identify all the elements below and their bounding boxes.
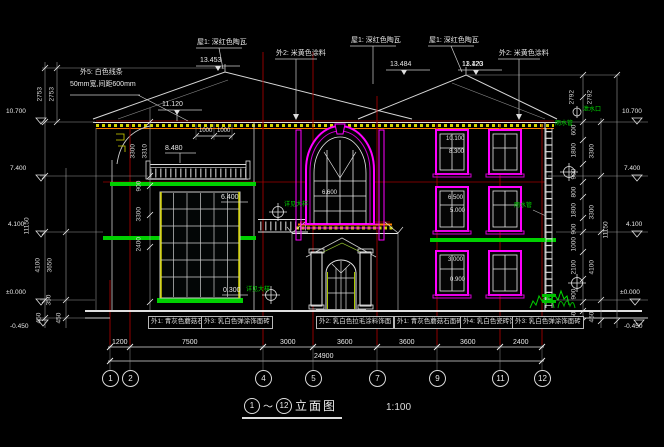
green-note: 雨水管 (514, 203, 532, 209)
dim-label: 1800 (572, 203, 579, 217)
title-bubble-start: 1 (244, 398, 260, 414)
dim-label: 1000 (217, 128, 230, 134)
dim-label: 3600 (337, 339, 353, 346)
dim-label: 3310 (143, 144, 150, 158)
drawing-scale: 1:100 (386, 402, 411, 413)
title-tilde: ～ (263, 398, 273, 413)
facade-label: 6.400 (221, 194, 239, 201)
facade-label: 8.480 (165, 145, 183, 152)
dim-label: 1200 (112, 339, 128, 346)
dim-label: 350 (47, 295, 54, 306)
elevation-label: ±0.000 (6, 290, 26, 297)
dim-label: 3600 (399, 339, 415, 346)
green-note: 泄水口 (583, 107, 601, 113)
rain-pipe (546, 128, 552, 308)
dim-label: 4100 (36, 258, 43, 272)
dim-label: 900 (137, 181, 144, 192)
drawing-title: 1 ～ 12 立面图 (242, 397, 342, 419)
dim-label: 2753 (50, 87, 57, 101)
dim-label: 3600 (460, 339, 476, 346)
green-note: 详见大样 (246, 287, 270, 293)
dim-label: 2400 (137, 237, 144, 251)
material-note: 外2: 乳白色拉毛涂料饰面 (316, 316, 394, 329)
window-label: 3.000 (448, 257, 463, 263)
grid-bubble: 4 (255, 370, 272, 387)
facade-label: 6.600 (322, 190, 337, 196)
elevation-label: 7.400 (624, 166, 640, 173)
dim-label: 900 (572, 289, 579, 300)
dim-label: 1800 (572, 143, 579, 157)
dim-label: 11.120 (162, 101, 183, 108)
annotation-ext5: 外5: 白色线条 (80, 69, 123, 76)
material-note: 外3: 乳白色弹涂饰面砖 (512, 316, 584, 329)
annotation-roof1: 屋1: 深红色陶瓦 (351, 37, 401, 44)
elevation-label: -0.450 (624, 324, 642, 331)
dim-label: 13.453 (200, 57, 221, 64)
dim-label: 1000 (572, 237, 579, 251)
material-note: 外3: 乳白色弹涂饰面砖 (201, 316, 273, 329)
dim-label: 11150 (604, 221, 611, 238)
dim-label: 7500 (182, 339, 198, 346)
elevation-label: 10.700 (622, 109, 642, 116)
elevation-label: 7.400 (10, 166, 26, 173)
grid-bubble: 7 (369, 370, 386, 387)
elevation-label: ±0.000 (620, 290, 640, 297)
dim-label: 3300 (590, 205, 597, 219)
dim-label: 2400 (513, 339, 529, 346)
dim-label: 900 (572, 224, 579, 235)
elevation-label: 4.100 (626, 222, 642, 229)
annotation-roof1: 屋1: 深红色陶瓦 (197, 39, 247, 46)
dim-label: 4100 (590, 260, 597, 274)
cad-linework (0, 0, 664, 447)
dim-label: 800 (572, 187, 579, 198)
dim-label: 900 (572, 169, 579, 180)
title-bubble-end: 12 (276, 398, 292, 414)
annotation-ext5b: 50mm宽,间距600mm (70, 81, 136, 88)
dim-label: 1000 (199, 128, 212, 134)
facade-label: 0.300 (223, 287, 241, 294)
dim-label: 13.423 (462, 61, 483, 68)
window-label: 0.900 (450, 277, 465, 283)
green-note: 详见大样 (284, 202, 308, 208)
grid-bubble: 2 (122, 370, 139, 387)
grid-bubble: 9 (429, 370, 446, 387)
elevation-label: 4.100 (8, 222, 24, 229)
dim-label: 13.484 (390, 61, 411, 68)
dim-total-label: 24900 (314, 353, 333, 360)
annotation-ext2: 外2: 米黄色涂料 (499, 50, 549, 57)
dim-label: 2792 (588, 90, 595, 104)
annotation-ext2: 外2: 米黄色涂料 (276, 50, 326, 57)
dim-label: 3000 (280, 339, 296, 346)
window-label: 6.500 (448, 195, 463, 201)
grid-bubble: 5 (305, 370, 322, 387)
dim-label: 2753 (38, 87, 45, 101)
window-label: 8.300 (449, 149, 464, 155)
grid-bubble: 1 (102, 370, 119, 387)
window-label: 10.100 (446, 136, 464, 142)
dim-label: 450 (37, 313, 44, 324)
dim-label: 2100 (572, 260, 579, 274)
elevation-drawing-canvas: 外5: 白色线条 50mm宽,间距600mm 屋1: 深红色陶瓦 外2: 米黄色… (0, 0, 664, 447)
grid-bubble: 12 (534, 370, 551, 387)
grid-bubble: 11 (492, 370, 509, 387)
dim-label: 3300 (590, 144, 597, 158)
dim-label: 2792 (570, 90, 577, 104)
dim-label: 11150 (25, 217, 32, 234)
material-note: 外1: 青灰色蘑菇石面砖 (394, 316, 466, 329)
dim-label: 600 (572, 125, 579, 136)
title-text: 立面图 (295, 397, 337, 414)
dim-label: 450 (57, 313, 64, 324)
elevation-label: 10.700 (6, 109, 26, 116)
elevation-label: -0.450 (10, 324, 28, 331)
dim-label: 3300 (131, 144, 138, 158)
dim-label: 3650 (48, 258, 55, 272)
annotation-roof1: 屋1: 深红色陶瓦 (429, 37, 479, 44)
dim-label: 3300 (137, 207, 144, 221)
dim-label: 450 (590, 312, 597, 323)
window-label: 5.000 (450, 208, 465, 214)
